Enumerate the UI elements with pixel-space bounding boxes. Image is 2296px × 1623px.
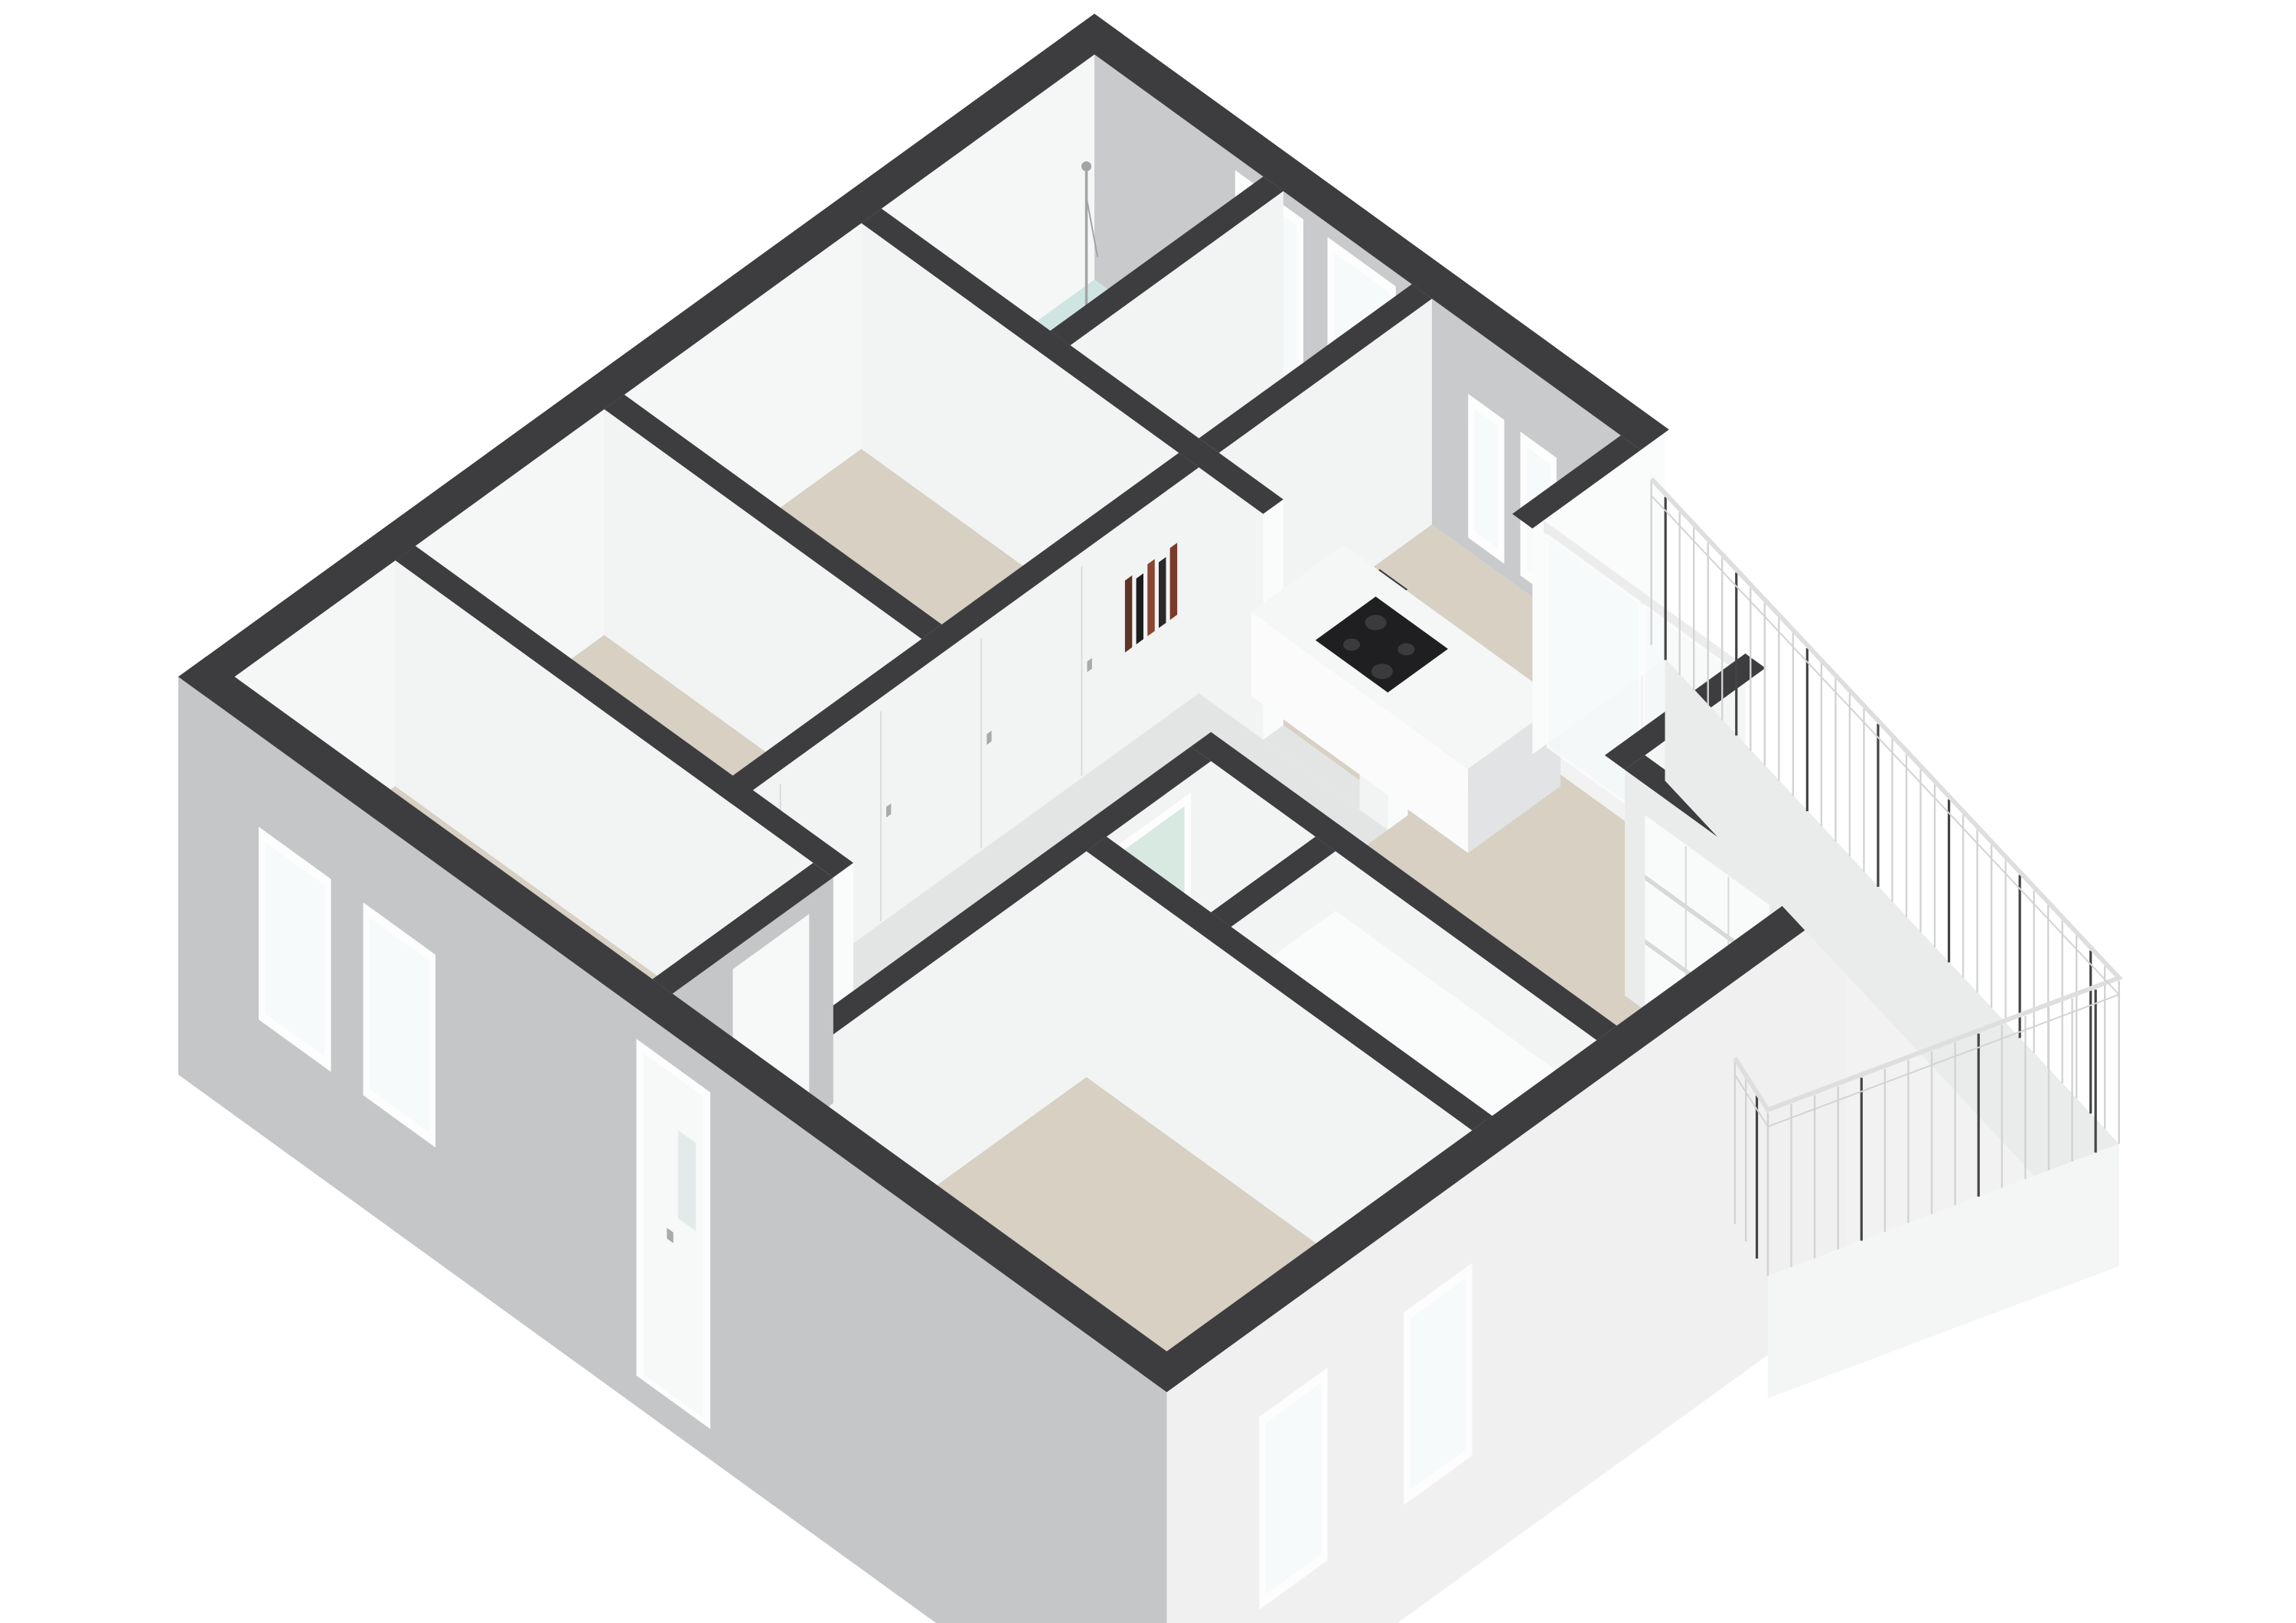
closet-door-seam-3 xyxy=(880,711,882,921)
closet-door-seam-1 xyxy=(1081,565,1083,776)
burner-1 xyxy=(1365,615,1387,631)
window-ne-3-glass xyxy=(1475,409,1498,549)
floor-plan-3d-render xyxy=(0,0,2296,1623)
closet-door-seam-2 xyxy=(980,638,982,849)
burner-4 xyxy=(1371,663,1393,679)
shower-column-1-head xyxy=(1081,161,1091,171)
floor-plan-page xyxy=(0,0,2296,1623)
book-shelf xyxy=(1159,557,1166,628)
book-shelf xyxy=(1147,559,1155,637)
book-shelf xyxy=(1125,575,1132,653)
book-shelf xyxy=(1170,543,1178,620)
entrance-door-glass xyxy=(678,1130,696,1231)
burner-2 xyxy=(1397,644,1414,656)
burner-3 xyxy=(1343,638,1360,650)
book-shelf xyxy=(1137,573,1143,644)
